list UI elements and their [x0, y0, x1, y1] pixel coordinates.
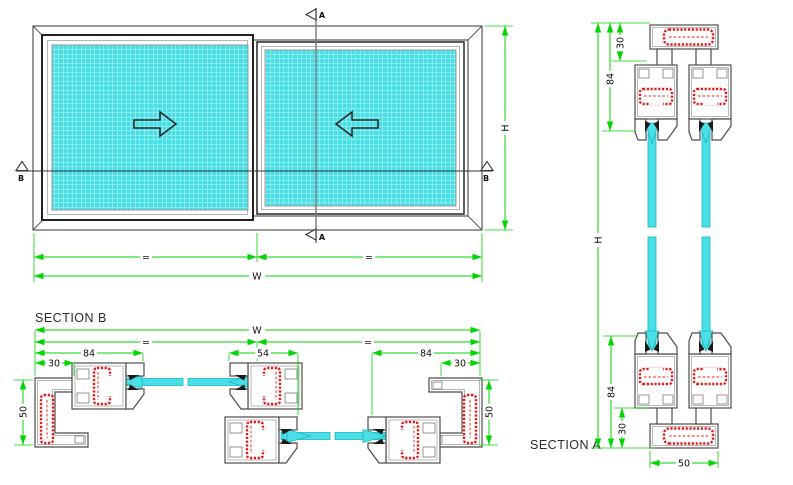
dim-label-84-top: 84	[606, 73, 617, 85]
dim-label-84-right: 84	[420, 349, 432, 360]
sliding-panel-right	[257, 42, 464, 214]
dim-label-h-total: H	[594, 236, 605, 243]
dim-label-84-left: 84	[83, 349, 95, 360]
dim-label-width: W	[252, 272, 262, 283]
cut-label-b-right: B	[483, 174, 489, 183]
section-a-glass	[645, 123, 713, 351]
cut-label-b-left: B	[18, 174, 24, 183]
section-b: SECTION B	[14, 311, 498, 463]
dim-label-30-bottom: 30	[618, 423, 629, 435]
technical-drawing-canvas: A A B B H	[0, 0, 793, 485]
dim-label-84-bottom: 84	[607, 386, 618, 398]
dim-label-equal-right: =	[365, 253, 373, 264]
dim-label-equal-left: =	[142, 253, 150, 264]
dim-label-eq-left: =	[142, 338, 150, 349]
sliding-panel-left	[42, 35, 253, 220]
dim-label-30-left: 30	[48, 359, 60, 370]
glass-edge-arrow-icon	[287, 430, 310, 443]
dim-label-eq-right: =	[364, 338, 372, 349]
window-elevation: A A B B H	[16, 8, 513, 283]
dim-elevation-height: H	[485, 26, 513, 230]
sash-interlock-lower	[225, 417, 297, 463]
section-a-title: SECTION A	[530, 438, 601, 452]
sash-right	[368, 417, 440, 463]
dim-label-30-top: 30	[616, 37, 627, 49]
dim-elevation-widths: = = W	[34, 233, 482, 283]
dim-label-w: W	[252, 326, 262, 337]
sliding-window-drawing: A A B B H	[0, 0, 793, 485]
section-b-title: SECTION B	[35, 311, 107, 325]
cut-marker-b-right-icon	[481, 162, 493, 171]
dim-label-50-sill: 50	[678, 459, 690, 470]
dim-label-54: 54	[257, 349, 269, 360]
cut-marker-a-bottom-icon	[306, 229, 316, 240]
dim-label-50-left: 50	[19, 406, 30, 418]
cut-marker-a-top-icon	[306, 9, 316, 20]
cut-label-a-bottom: A	[319, 233, 326, 242]
cut-label-a-top: A	[319, 11, 326, 20]
sash-interlock-upper	[230, 363, 302, 409]
section-a: SECTION A	[530, 23, 731, 470]
cut-marker-b-left-icon	[16, 162, 28, 171]
dim-label-30-right: 30	[454, 359, 466, 370]
dim-label-50-right: 50	[485, 406, 496, 418]
dim-label-height: H	[501, 124, 512, 131]
